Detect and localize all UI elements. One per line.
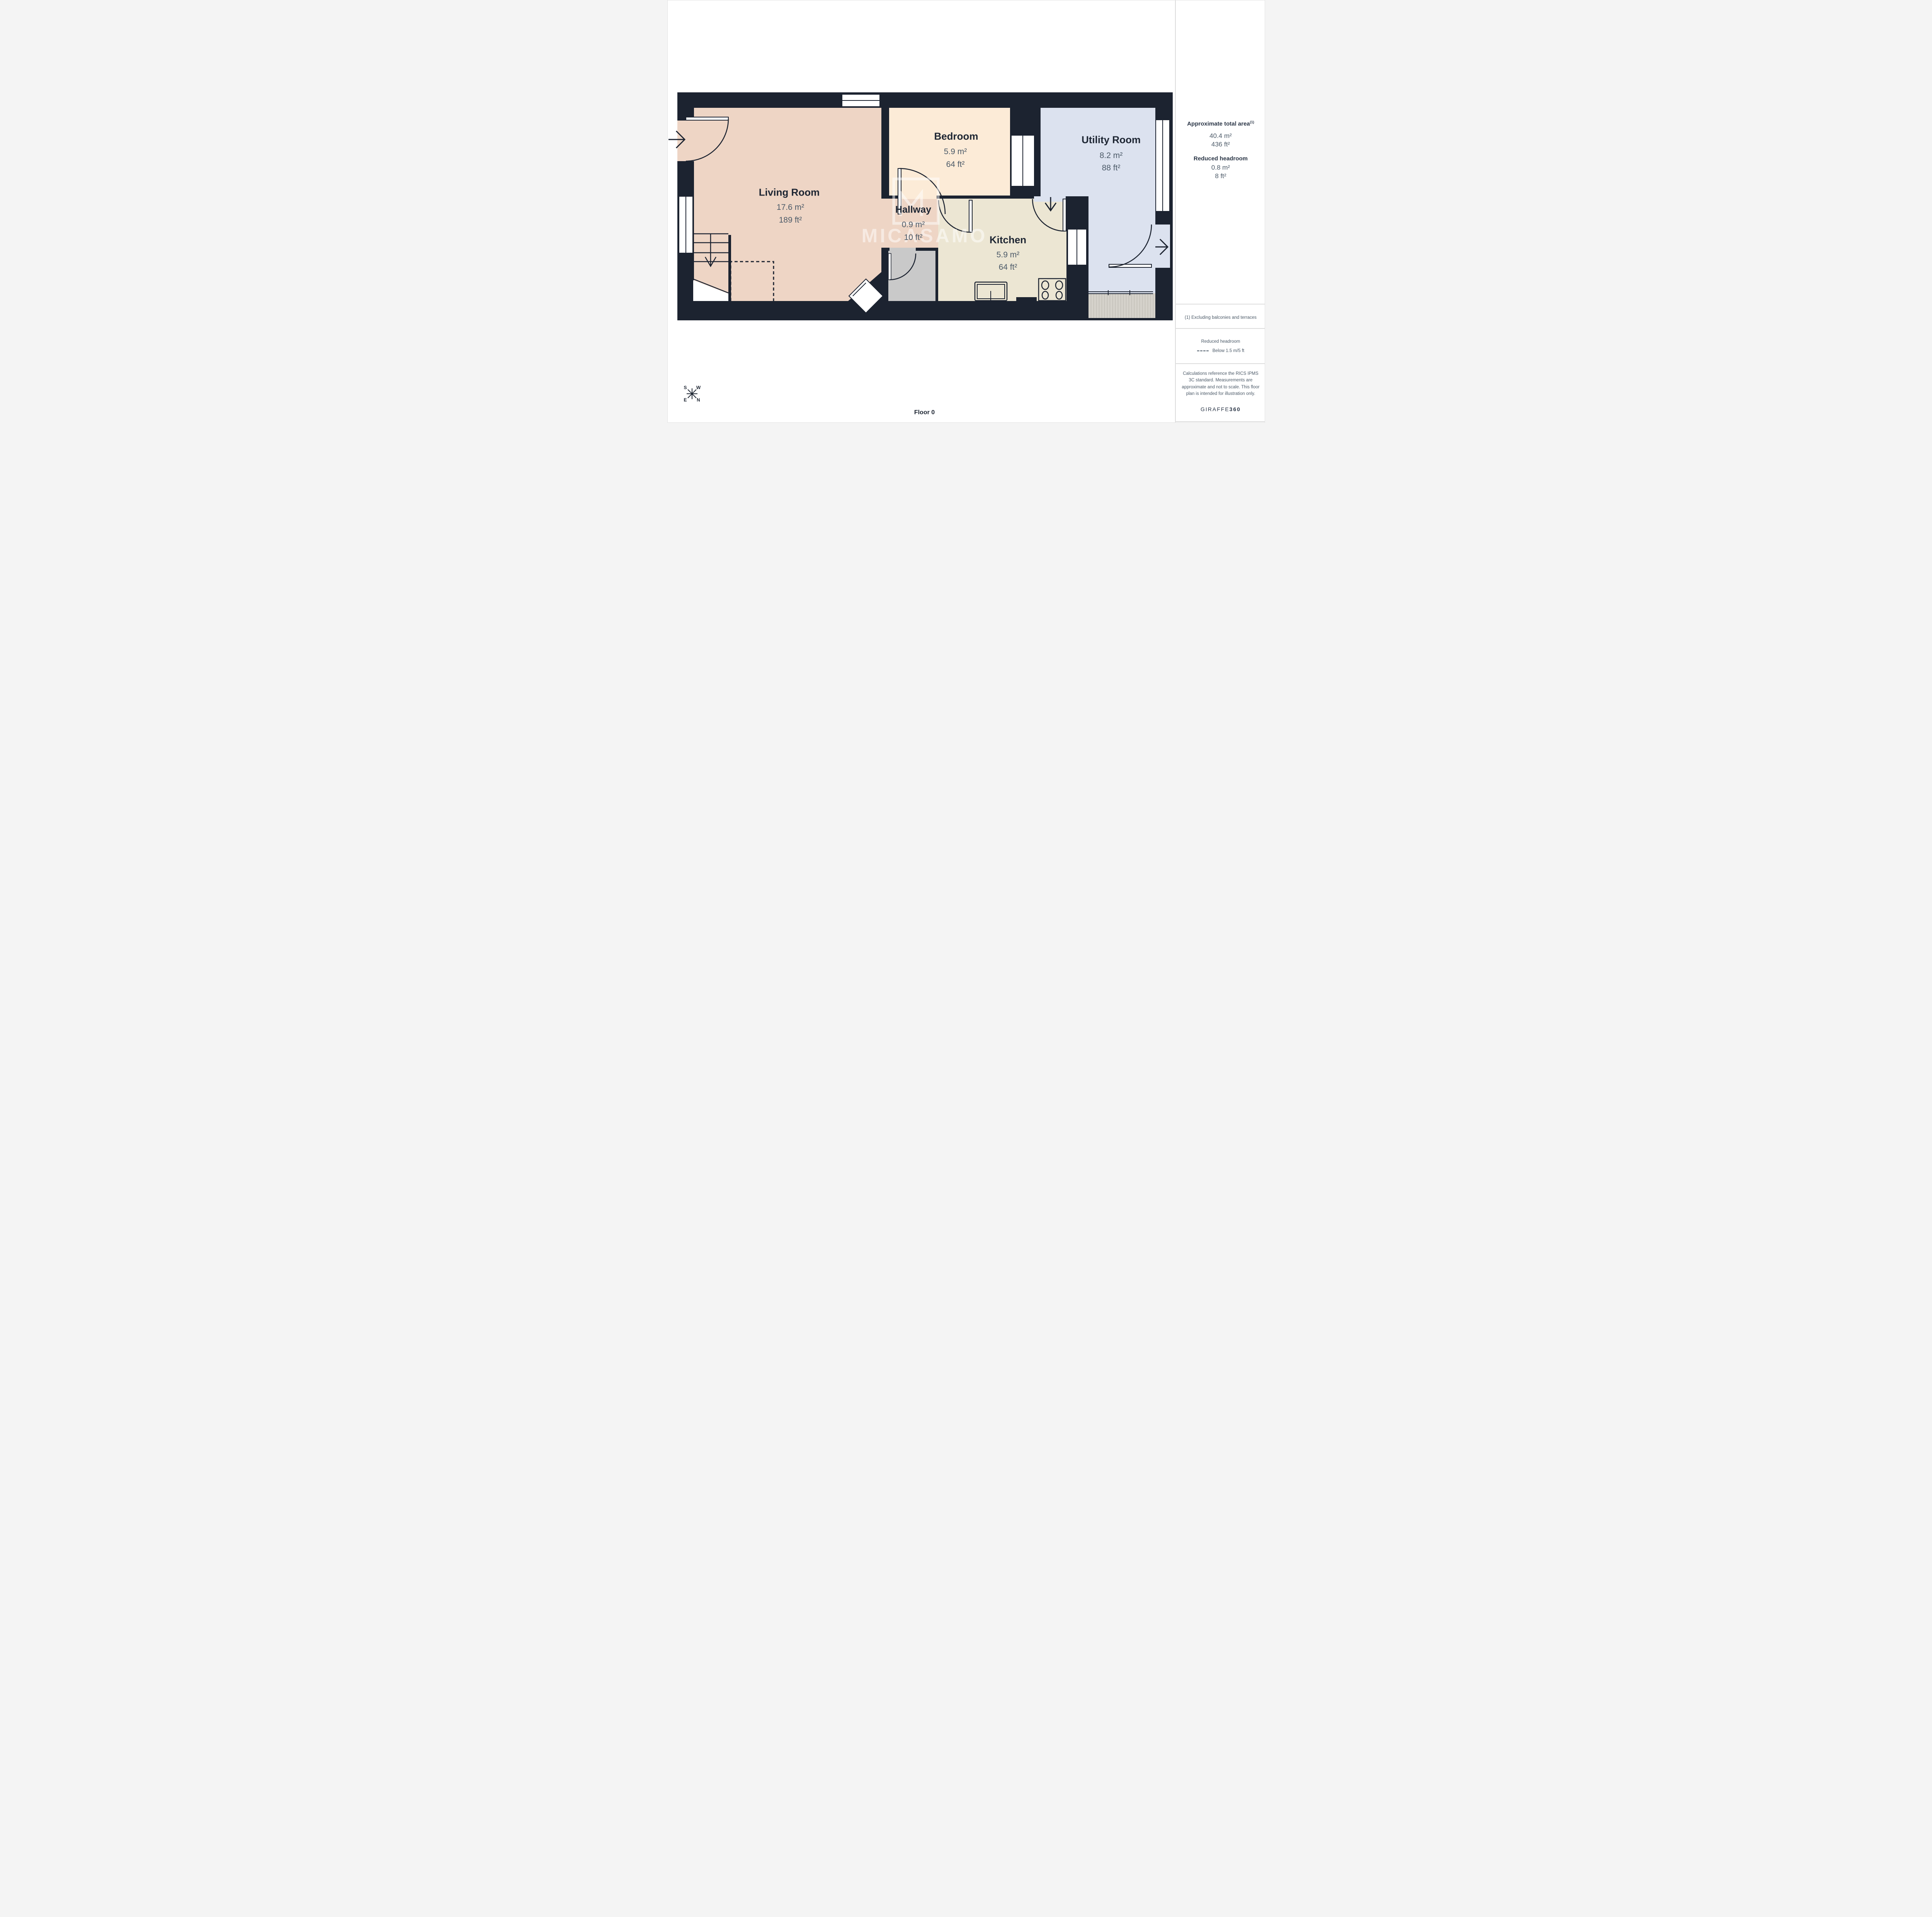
room-label-living: Living Room (759, 187, 820, 199)
window-kitchen-utility-wall (1068, 230, 1086, 265)
room-label-kitchen: Kitchen (990, 234, 1026, 246)
total-area-ft2: 436 ft² (1176, 141, 1265, 148)
room-area-ft2-living: 189 ft² (779, 216, 802, 225)
room-area-ft2-utility: 88 ft² (1102, 163, 1121, 173)
terrace-mat (1088, 293, 1155, 318)
window-right-wall (1156, 120, 1169, 211)
reduced-headroom-heading: Reduced headroom (1176, 155, 1265, 162)
compass-letter-n: N (697, 397, 700, 403)
room-label-utility: Utility Room (1082, 134, 1141, 146)
room-label-hallway: Hallway (895, 204, 931, 216)
utility-kitchen-threshold (1034, 196, 1066, 202)
room-label-bedroom: Bedroom (934, 131, 978, 143)
window-bedroom-utility-wall (1012, 136, 1034, 186)
total-area-heading: Approximate total area(1) (1176, 120, 1265, 127)
compass-icon (687, 388, 697, 399)
brand-name: GIRAFFE (1201, 406, 1230, 412)
reduced-headroom-ft2: 8 ft² (1176, 172, 1265, 180)
room-area-ft2-bedroom: 64 ft² (946, 160, 965, 169)
cupboard-door-opening (889, 248, 916, 251)
window-top-wall (842, 95, 879, 106)
compass-letter-s: S (684, 385, 687, 390)
room-area-m2-kitchen: 5.9 m² (997, 250, 1020, 260)
brand-suffix: 360 (1230, 406, 1241, 412)
sidebar-divider-3 (1176, 363, 1265, 364)
total-area-heading-text: Approximate total area (1187, 121, 1250, 127)
sidebar: Approximate total area(1) 40.4 m² 436 ft… (1175, 0, 1265, 423)
kitchen-wall-stub (1016, 297, 1037, 301)
floorplan-page: MICASAMO Living Room 17.6 m² 189 ft² Bed… (667, 0, 1265, 423)
compass-letter-e: E (684, 397, 687, 403)
room-area-ft2-kitchen: 64 ft² (999, 263, 1017, 272)
legend-title: Reduced headroom (1176, 339, 1265, 344)
cupboard-floor (888, 251, 935, 301)
dashed-line-icon (1197, 350, 1209, 351)
total-area-m2: 40.4 m² (1176, 132, 1265, 140)
legend-row: Below 1.5 m/5 ft (1176, 349, 1265, 353)
window-left-wall (679, 197, 692, 253)
kitchen-floor (938, 199, 1066, 301)
footnote: (1) Excluding balconies and terraces (1176, 315, 1265, 320)
room-area-m2-hallway: 0.9 m² (902, 220, 925, 230)
total-area-heading-sup: (1) (1250, 120, 1254, 124)
room-area-ft2-hallway: 10 ft² (904, 233, 923, 242)
brand-logo: GIRAFFE360 (1176, 406, 1265, 412)
room-area-m2-bedroom: 5.9 m² (944, 147, 967, 156)
compass-letter-w: W (696, 385, 701, 390)
reduced-headroom-m2: 0.8 m² (1176, 164, 1265, 172)
disclaimer: Calculations reference the RICS IPMS 3C … (1176, 371, 1265, 397)
legend-item: Below 1.5 m/5 ft (1213, 349, 1244, 353)
room-area-m2-living: 17.6 m² (777, 203, 804, 212)
sidebar-divider-bottom (1176, 421, 1265, 422)
utility-exit-opening (1155, 225, 1170, 268)
entry-door-opening (677, 121, 694, 161)
sidebar-divider-2 (1176, 328, 1265, 329)
floor-label: Floor 0 (903, 409, 946, 416)
room-area-m2-utility: 8.2 m² (1100, 151, 1123, 160)
sidebar-divider-1 (1176, 304, 1265, 304)
